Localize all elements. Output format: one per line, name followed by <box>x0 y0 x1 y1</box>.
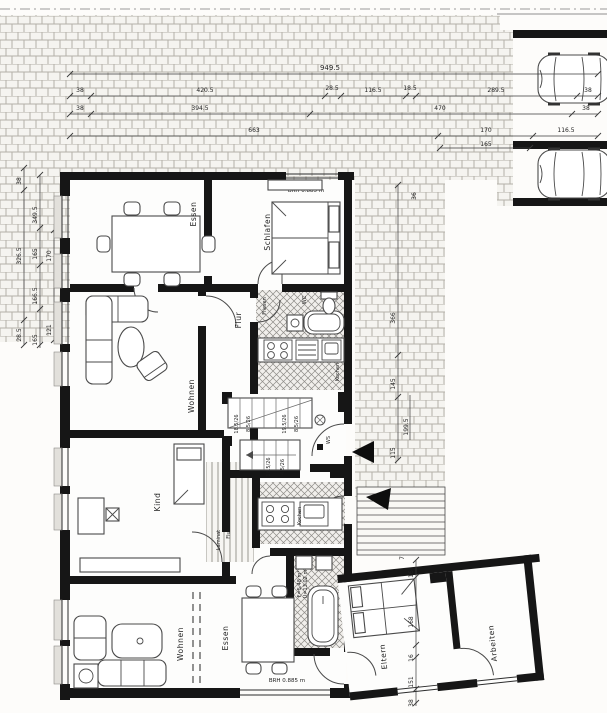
dining-table-lower-group <box>242 586 294 674</box>
dim-label: 420.5 <box>196 87 213 94</box>
dim-label: 38 <box>408 699 415 707</box>
chair <box>202 236 215 252</box>
ws-label: WS <box>326 436 332 444</box>
dim-label: 16 <box>408 654 415 662</box>
pillow <box>329 242 339 268</box>
window <box>54 352 68 386</box>
desk <box>78 498 104 534</box>
window <box>54 600 68 640</box>
chair <box>272 663 287 674</box>
dim-label: 326.5 <box>16 247 23 264</box>
dim-label: 28.5 <box>16 328 23 342</box>
step-label: 8.5/26 <box>294 416 300 432</box>
chair <box>97 236 110 252</box>
pillow <box>351 587 363 608</box>
dim-label: 38 <box>76 87 84 94</box>
toilet <box>323 298 335 314</box>
dim-label: 115 <box>390 447 397 459</box>
dim-label: 199.5 <box>403 418 410 435</box>
floor-plan-canvas: 949.5 38 420.5 28.5 116.5 18.5 289.5 38 … <box>0 0 607 713</box>
room-label-wc: WC <box>302 295 308 304</box>
step-label: 19.5/26 <box>282 414 288 433</box>
dim-label: 18.5 <box>403 85 417 92</box>
dim-label: 168 <box>408 616 415 628</box>
room-label-flur-lower: Flur <box>226 528 232 538</box>
annex-wing: Eltern Arbeiten <box>337 554 552 701</box>
room-label-flur-upper: Flur <box>234 311 243 328</box>
window <box>54 646 68 684</box>
dim-label: 470 <box>434 105 446 112</box>
dim-label: 170 <box>46 250 53 262</box>
window <box>54 494 68 530</box>
dim-label: 165 <box>32 248 39 260</box>
kitchen-upper-group <box>258 338 344 362</box>
step-label: 4.5/26 <box>280 459 286 475</box>
floor-note-laminat: Laminat <box>216 530 222 550</box>
dim-label: 170 <box>480 127 492 134</box>
chair <box>164 273 180 286</box>
dim-label: 116.5 <box>364 87 381 94</box>
room-label-essen-lower: Essen <box>221 626 230 651</box>
room-label-essen-upper: Essen <box>189 202 198 227</box>
pillow <box>177 448 201 460</box>
window <box>54 448 68 486</box>
step-label: 18.5/26 <box>234 414 240 433</box>
carport-wall-top <box>513 30 607 38</box>
room-label-schlafen: Schlafen <box>263 213 272 250</box>
sink <box>287 315 303 331</box>
chair <box>164 202 180 215</box>
dim-label: 165 <box>480 141 492 148</box>
chair <box>246 586 261 597</box>
dim-label: 38 <box>76 105 84 112</box>
room-label-kochen-upper: Kochen <box>335 363 341 381</box>
dim-label: 145 <box>390 378 397 390</box>
sideboard <box>80 558 180 572</box>
kitchen-upper-tile-floor <box>256 362 344 390</box>
parents-bed <box>348 579 419 638</box>
sink <box>296 556 312 569</box>
chair <box>246 663 261 674</box>
dim-label: 394.5 <box>191 105 208 112</box>
dim-label: 151 <box>408 676 415 688</box>
carport <box>497 14 607 206</box>
dim-label: 349.5 <box>32 206 39 223</box>
paving-top-terrace <box>0 15 500 180</box>
dim-label: 116.5 <box>557 127 574 134</box>
floor-plan-page: 949.5 38 420.5 28.5 116.5 18.5 289.5 38 … <box>0 0 607 713</box>
window <box>240 690 330 695</box>
dim-label: 366 <box>390 312 397 324</box>
toilet <box>316 556 332 570</box>
dim-label: 121 <box>46 324 53 336</box>
room-label-wohnen-lower: Wohnen <box>176 627 185 661</box>
dim-label: 166.5 <box>32 287 39 304</box>
dim-label: 38 <box>16 177 23 185</box>
dim-label: 165 <box>32 334 39 346</box>
chair <box>124 273 140 286</box>
car-icon <box>538 149 607 199</box>
dim-label: 36 <box>411 192 418 200</box>
stairs-upper-flight: 18.5/26 8.5/26 19.5/26 8.5/26 <box>228 398 312 434</box>
room-label-kind: Kind <box>153 493 162 512</box>
room-perimeter-note: U=13.02 m <box>303 570 309 599</box>
car-icon <box>538 54 607 104</box>
carport-back-column <box>497 30 513 206</box>
dresser <box>268 180 322 190</box>
step-label: 8.5/26 <box>246 416 252 432</box>
floor-note-fliesen: Fliesen <box>262 297 268 315</box>
dim-label: 38 <box>584 87 592 94</box>
dining-table <box>242 598 294 662</box>
window-sill-height-note: BRH 0.885 m <box>269 678 305 684</box>
pillow <box>353 613 365 634</box>
chair <box>272 586 287 597</box>
dim-label: 663 <box>248 127 260 134</box>
living-group-lower <box>74 616 166 688</box>
room-label-kochen-lower: Kochen <box>297 507 303 525</box>
stove-corner-unit <box>74 664 98 688</box>
room-label-wohnen-upper: Wohnen <box>187 379 196 413</box>
dim-label: 289.5 <box>487 87 504 94</box>
chair <box>124 202 140 215</box>
dining-table <box>112 216 200 272</box>
step-label: 18.5/26 <box>266 457 272 476</box>
dim-label: 16 <box>408 570 415 578</box>
dim-label: 38 <box>582 105 590 112</box>
dim-label: 28.5 <box>325 85 339 92</box>
sofa <box>98 660 166 686</box>
pillow <box>329 206 339 232</box>
dim-label: 949.5 <box>320 64 340 72</box>
